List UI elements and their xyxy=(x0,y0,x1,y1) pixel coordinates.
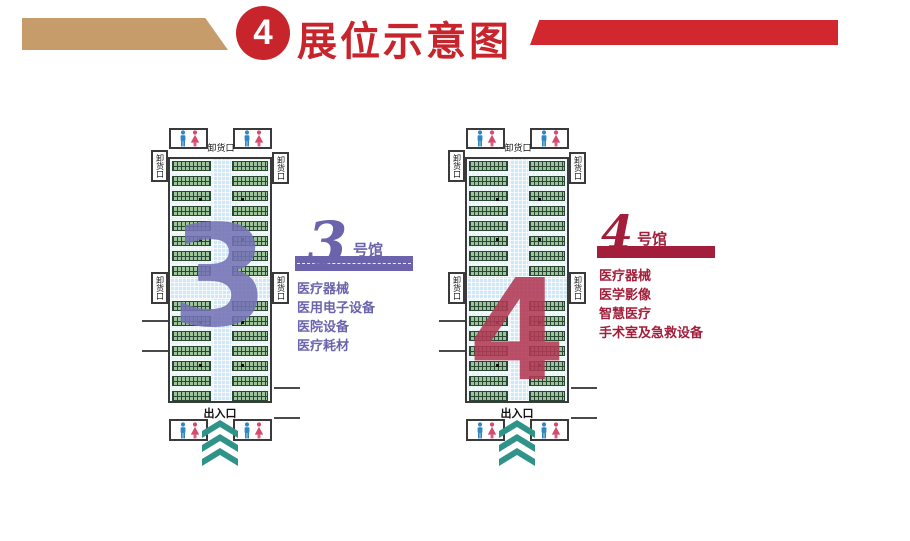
male-icon xyxy=(244,130,249,146)
restroom-icons xyxy=(240,422,266,439)
restroom-box xyxy=(530,419,569,441)
legend-hall-number: 4 xyxy=(601,209,633,255)
unloading-dock: 卸货口 xyxy=(151,272,168,304)
corridor-wall-stub xyxy=(571,387,597,389)
male-icon xyxy=(541,130,546,146)
category-item: 医用电子设备 xyxy=(297,298,375,317)
restroom-icons xyxy=(240,130,266,147)
unloading-dock-label: 卸货口 xyxy=(156,276,164,300)
booth-row xyxy=(469,176,508,186)
corridor-wall-stub xyxy=(439,350,465,352)
hall-3-floor-plan: 卸货口 3 卸货口 卸货口 卸货口 卸货口 出入口 xyxy=(142,128,302,473)
hall-outline: 4 xyxy=(465,157,569,403)
pillar-dot xyxy=(538,238,541,241)
category-item: 医疗器械 xyxy=(599,266,703,285)
category-list: 医疗器械 医用电子设备 医院设备 医疗耗材 xyxy=(297,279,375,355)
booth-row xyxy=(469,191,508,201)
hall-4-floor-plan: 卸货口 4 卸货口 卸货口 卸货口 卸货口 出入口 xyxy=(439,128,599,473)
corridor-wall-stub xyxy=(274,387,300,389)
corridor-wall-stub xyxy=(142,350,168,352)
booth-row xyxy=(232,361,268,371)
unloading-dock: 卸货口 xyxy=(151,150,168,182)
female-icon xyxy=(254,422,262,438)
booth-row xyxy=(172,391,211,401)
category-item: 医院设备 xyxy=(297,317,375,336)
header-ribbon-left xyxy=(22,18,228,50)
restroom-icons xyxy=(537,130,563,147)
unloading-dock-label: 卸货口 xyxy=(574,156,582,180)
restroom-box xyxy=(233,419,272,441)
unloading-port-label: 卸货口 xyxy=(207,141,234,154)
restroom-box xyxy=(530,128,569,149)
entrance-label: 出入口 xyxy=(501,405,534,421)
chevron-up-icon xyxy=(202,420,238,466)
unloading-dock: 卸货口 xyxy=(569,272,586,304)
category-item: 智慧医疗 xyxy=(599,304,703,323)
booth-row xyxy=(529,221,565,231)
corridor-wall-stub xyxy=(274,417,300,419)
restroom-icons xyxy=(537,422,563,439)
chevron-up-icon xyxy=(499,420,535,466)
corridor-wall-stub xyxy=(142,320,168,322)
unloading-dock-label: 卸货口 xyxy=(453,154,461,178)
legend-hall-suffix: 号馆 xyxy=(637,228,667,249)
booth-row xyxy=(232,176,268,186)
male-icon xyxy=(477,130,482,146)
unloading-dock: 卸货口 xyxy=(272,152,289,184)
restroom-box xyxy=(466,128,505,149)
unloading-dock-label: 卸货口 xyxy=(277,156,285,180)
restroom-icons xyxy=(473,130,499,147)
corridor-wall-stub xyxy=(571,417,597,419)
booth-row xyxy=(529,176,565,186)
restroom-icons xyxy=(176,422,202,439)
unloading-port-label: 卸货口 xyxy=(504,141,531,154)
booth-row xyxy=(232,376,268,386)
booth-row xyxy=(529,206,565,216)
booth-row xyxy=(172,161,211,171)
female-icon xyxy=(551,422,559,438)
unloading-dock: 卸货口 xyxy=(569,152,586,184)
booth-row xyxy=(529,191,565,201)
female-icon xyxy=(551,130,559,146)
category-item: 医疗器械 xyxy=(297,279,375,298)
page: 4 展位示意图 卸货口 3 卸货口 卸货口 卸货口 卸货口 出入口 3 号馆 医… xyxy=(0,0,910,541)
category-item: 医疗耗材 xyxy=(297,336,375,355)
restroom-box xyxy=(169,128,208,149)
hall-4-legend: 4 号馆 医疗器械 医学影像 智慧医疗 手术室及急救设备 xyxy=(597,213,747,353)
unloading-dock: 卸货口 xyxy=(272,272,289,304)
booth-row xyxy=(529,161,565,171)
booth-row xyxy=(469,161,508,171)
female-icon xyxy=(254,130,262,146)
entrance-label: 出入口 xyxy=(204,405,237,421)
category-item: 手术室及急救设备 xyxy=(599,323,703,342)
male-icon xyxy=(180,130,185,146)
category-item: 医学影像 xyxy=(599,285,703,304)
booth-row xyxy=(529,236,565,246)
female-icon xyxy=(487,130,495,146)
male-icon xyxy=(477,422,482,438)
section-number: 4 xyxy=(253,13,272,53)
unloading-dock: 卸货口 xyxy=(448,272,465,304)
page-title: 展位示意图 xyxy=(297,9,512,67)
unloading-dock: 卸货口 xyxy=(448,150,465,182)
restroom-box xyxy=(233,128,272,149)
category-list: 医疗器械 医学影像 智慧医疗 手术室及急救设备 xyxy=(599,266,703,342)
hall-number-overlay: 3 xyxy=(171,223,268,332)
booth-row xyxy=(172,361,211,371)
header-ribbon-right xyxy=(530,20,838,45)
pillar-dot xyxy=(538,198,541,201)
legend-hall-number: 3 xyxy=(307,214,347,272)
hall-number-overlay: 4 xyxy=(468,277,565,386)
female-icon xyxy=(190,422,198,438)
unloading-dock-label: 卸货口 xyxy=(574,276,582,300)
unloading-dock-label: 卸货口 xyxy=(156,154,164,178)
male-icon xyxy=(541,422,546,438)
restroom-icons xyxy=(176,130,202,147)
entrance-arrows xyxy=(202,420,238,471)
female-icon xyxy=(190,130,198,146)
pillar-dot xyxy=(496,238,499,241)
booth-row xyxy=(469,206,508,216)
booth-row xyxy=(232,391,268,401)
hall-3-legend: 3 号馆 医疗器械 医用电子设备 医院设备 医疗耗材 xyxy=(295,222,445,362)
male-icon xyxy=(180,422,185,438)
booth-row xyxy=(172,176,211,186)
legend-hall-suffix: 号馆 xyxy=(353,239,383,260)
booth-row xyxy=(469,236,508,246)
male-icon xyxy=(244,422,249,438)
unloading-dock-label: 卸货口 xyxy=(453,276,461,300)
entrance-arrows xyxy=(499,420,535,471)
pillar-dot xyxy=(241,364,244,367)
booth-row xyxy=(232,161,268,171)
female-icon xyxy=(487,422,495,438)
corridor-wall-stub xyxy=(439,320,465,322)
booth-row xyxy=(172,376,211,386)
hall-outline: 3 xyxy=(168,157,272,403)
unloading-dock-label: 卸货口 xyxy=(277,276,285,300)
pillar-dot xyxy=(199,364,202,367)
section-number-badge: 4 xyxy=(236,6,290,60)
pillar-dot xyxy=(496,198,499,201)
booth-row xyxy=(469,221,508,231)
restroom-icons xyxy=(473,422,499,439)
